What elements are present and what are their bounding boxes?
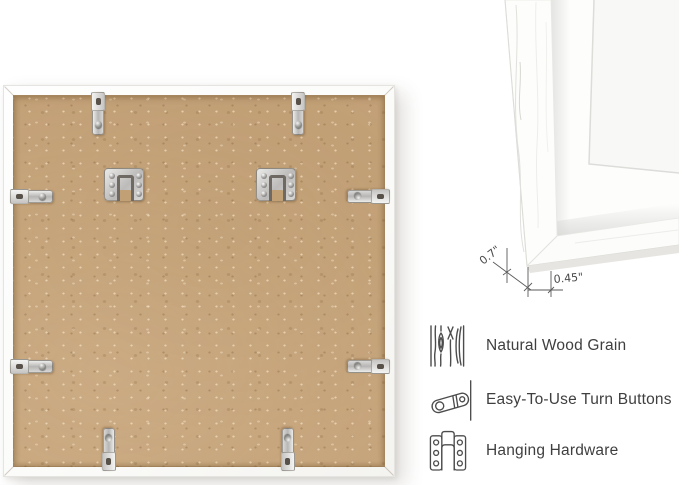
product-infographic: 0.7" 0.45" Natural Wood Grain [0,0,679,485]
screw-slot [286,458,291,465]
sawtooth-slot [269,175,286,201]
feature-item: Hanging Hardware [429,429,618,473]
screw [295,121,302,128]
turn-button [282,428,294,471]
feature-item: Natural Wood Grain [429,324,626,368]
turn-button [347,360,390,373]
screw [39,193,46,200]
turn-button [347,190,390,203]
nail-hole [261,182,267,188]
screw-slot [96,98,101,105]
nail-hole [109,191,115,197]
turn-button-icon [429,377,486,423]
feature-item: Easy-To-Use Turn Buttons [429,377,672,423]
frame-back-view [3,85,395,477]
mdf-backing-board [13,95,385,467]
turn-button [10,360,53,373]
frame-rail-left [505,0,557,266]
nail-hole [109,173,115,179]
screw-slot [16,364,23,369]
screw [354,193,361,200]
hanging-hardware-bracket [104,168,144,201]
nail-hole [109,182,115,188]
screw-slot [377,364,384,369]
sawtooth-slot [117,175,134,201]
hanging-hardware-bracket [256,168,296,201]
turn-button [103,428,115,471]
nail-hole [136,182,142,188]
nail-hole [136,191,142,197]
nail-hole [288,191,294,197]
nail-hole [136,173,142,179]
nail-hole [261,173,267,179]
screw [354,363,361,370]
turn-button [92,92,104,135]
turn-button [10,190,53,203]
feature-label: Easy-To-Use Turn Buttons [486,391,672,409]
screw [106,435,113,442]
face-width-dimension-label: 0.45" [553,270,584,286]
screw-slot [107,458,112,465]
turn-button [292,92,304,135]
wood-grain-icon [429,325,486,367]
screw-slot [16,194,23,199]
feature-label: Natural Wood Grain [486,337,626,355]
mat-opening [589,0,679,173]
depth-dimension-label: 0.7" [477,243,503,267]
frame-corner-dimension-diagram: 0.7" 0.45" [420,0,679,310]
hanging-hardware-icon [429,429,486,473]
nail-hole [288,182,294,188]
feature-label: Hanging Hardware [486,442,618,460]
nail-hole [261,191,267,197]
screw-slot [296,98,301,105]
screw-slot [377,194,384,199]
screw [39,363,46,370]
nail-hole [288,173,294,179]
screw [95,121,102,128]
screw [285,435,292,442]
